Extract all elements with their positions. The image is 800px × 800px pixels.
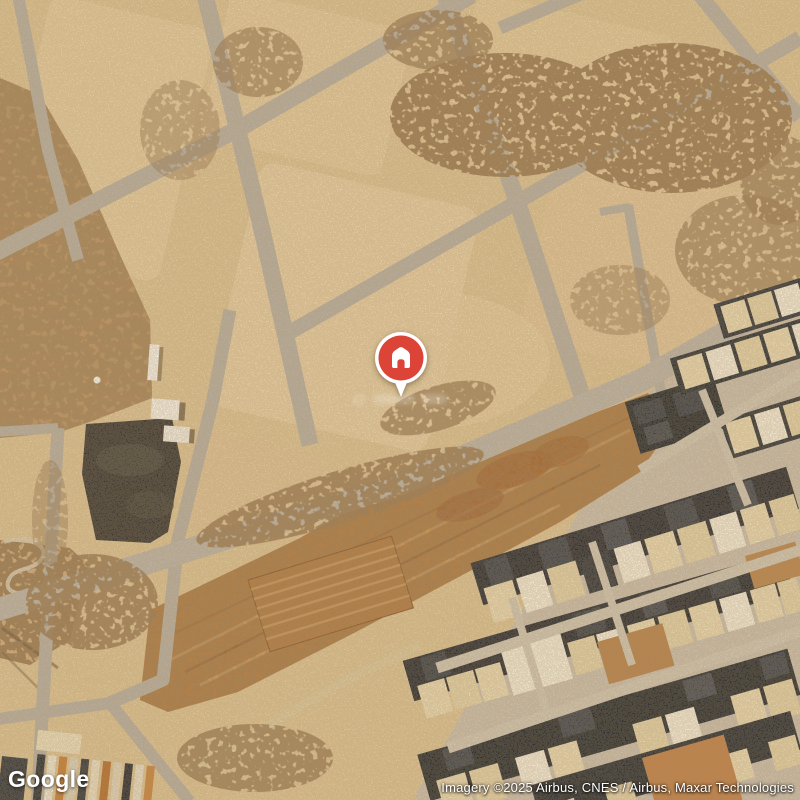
map-viewport[interactable]: @ Google Imagery ©2025 Airbus, CNES / Ai… bbox=[0, 0, 800, 800]
imagery-attribution: Imagery ©2025 Airbus, CNES / Airbus, Max… bbox=[441, 780, 794, 795]
property-pin-marker[interactable] bbox=[371, 331, 431, 401]
google-logo[interactable]: Google bbox=[8, 766, 90, 793]
